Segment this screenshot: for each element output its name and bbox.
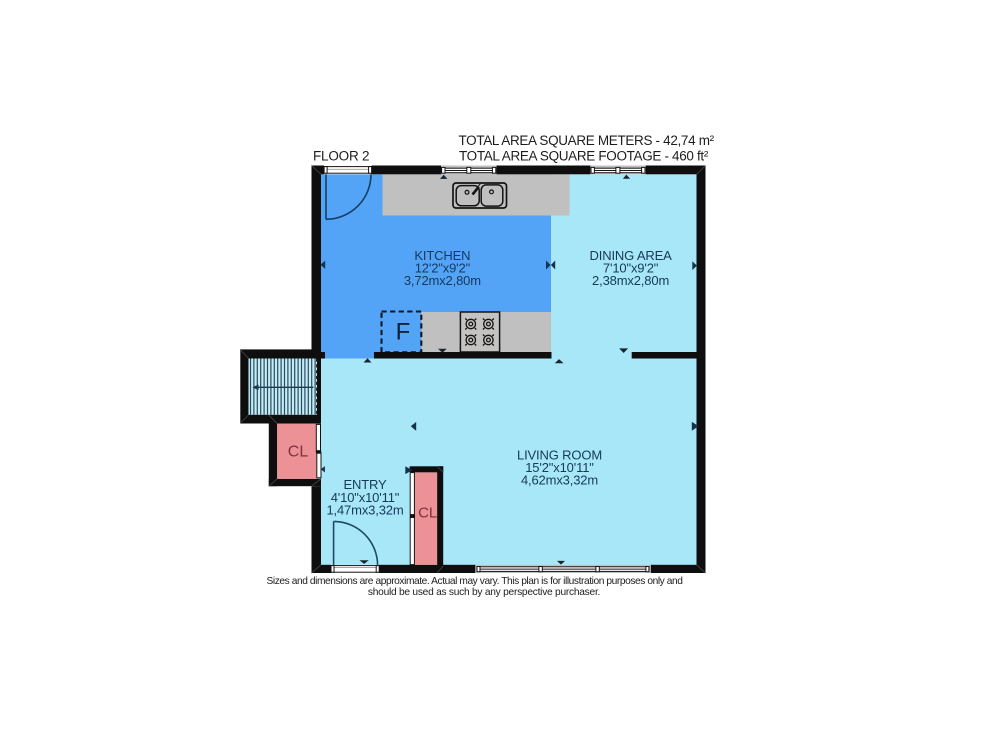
- svg-text:CL: CL: [288, 443, 309, 460]
- svg-text:TOTAL AREA SQUARE METERS - 42,: TOTAL AREA SQUARE METERS - 42,74 m²: [459, 133, 715, 148]
- svg-text:CL: CL: [418, 504, 437, 521]
- svg-text:FLOOR 2: FLOOR 2: [313, 149, 369, 164]
- svg-text:4,62mx3,32m: 4,62mx3,32m: [521, 473, 598, 488]
- svg-text:3,72mx2,80m: 3,72mx2,80m: [404, 273, 481, 288]
- svg-text:2,38mx2,80m: 2,38mx2,80m: [592, 273, 669, 288]
- svg-text:1,47mx3,32m: 1,47mx3,32m: [326, 502, 403, 517]
- svg-text:Sizes and dimensions are appro: Sizes and dimensions are approximate. Ac…: [266, 576, 683, 587]
- svg-text:F: F: [396, 319, 411, 346]
- svg-text:should be used as such by any: should be used as such by any perspectiv…: [368, 587, 600, 598]
- svg-text:TOTAL AREA SQUARE FOOTAGE - 46: TOTAL AREA SQUARE FOOTAGE - 460 ft²: [459, 149, 709, 164]
